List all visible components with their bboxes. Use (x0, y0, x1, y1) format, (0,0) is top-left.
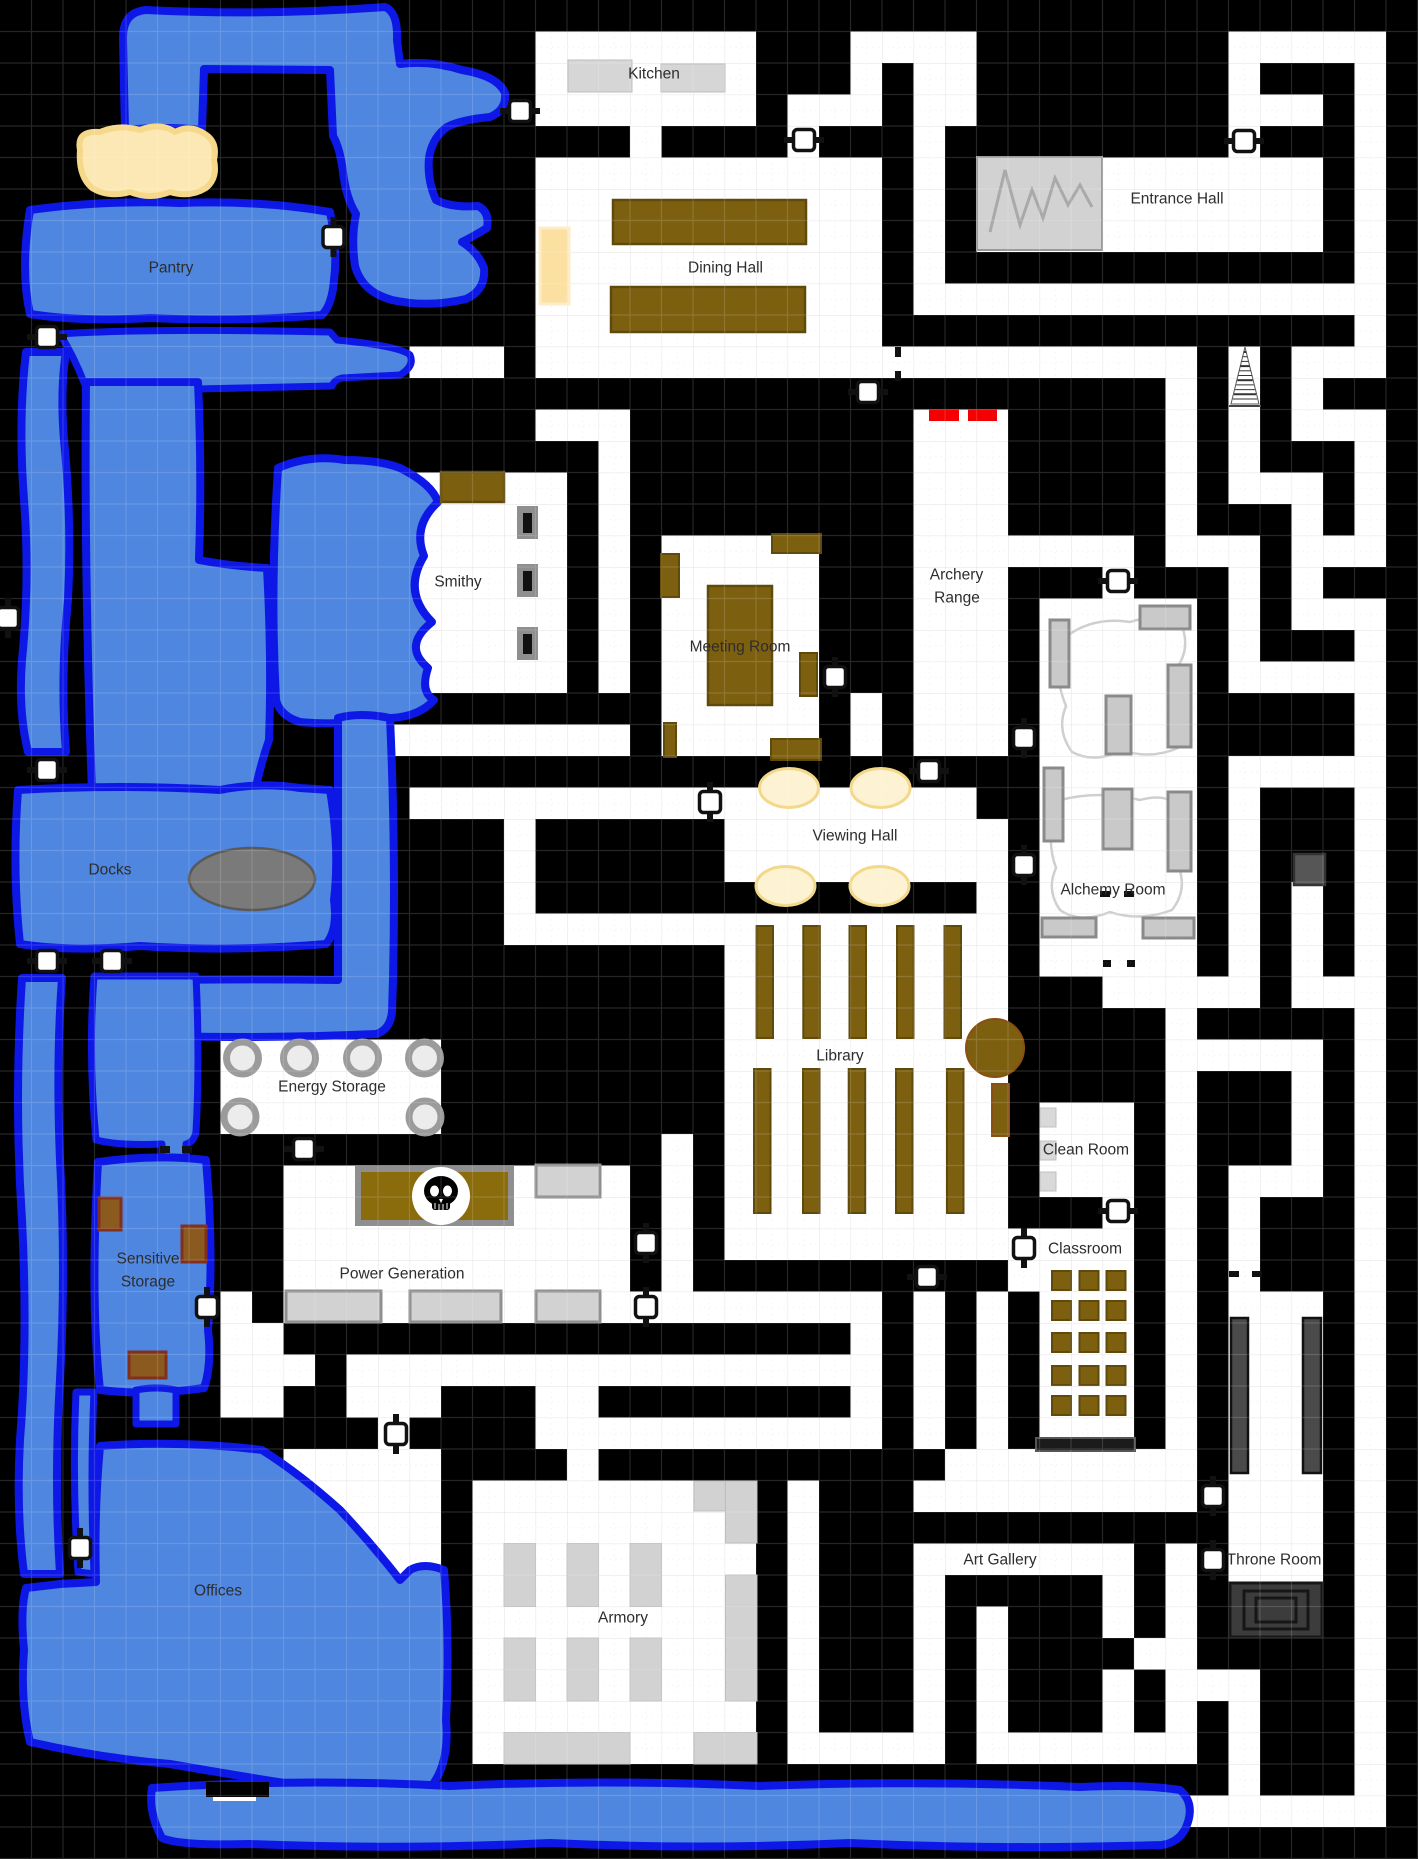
svg-text:Classroom: Classroom (1048, 1241, 1122, 1258)
svg-text:Meeting Room: Meeting Room (690, 639, 791, 656)
svg-text:Pantry: Pantry (149, 260, 194, 277)
svg-text:Kitchen: Kitchen (628, 66, 680, 83)
svg-text:Viewing Hall: Viewing Hall (812, 828, 897, 845)
svg-text:Energy Storage: Energy Storage (278, 1079, 386, 1096)
svg-text:Alchemy Room: Alchemy Room (1060, 882, 1165, 899)
svg-text:Sensitive: Sensitive (117, 1251, 180, 1268)
svg-text:Power Generation: Power Generation (340, 1266, 465, 1283)
svg-text:Entrance Hall: Entrance Hall (1130, 191, 1223, 208)
svg-text:Throne Room: Throne Room (1227, 1552, 1322, 1569)
svg-text:Library: Library (816, 1048, 864, 1065)
svg-text:Clean Room: Clean Room (1043, 1142, 1129, 1159)
svg-text:Armory: Armory (598, 1610, 648, 1627)
svg-text:Range: Range (934, 590, 980, 607)
svg-text:Smithy: Smithy (434, 574, 482, 591)
svg-text:Archery: Archery (930, 567, 984, 584)
svg-text:Offices: Offices (194, 1583, 242, 1600)
svg-text:Docks: Docks (88, 862, 131, 879)
svg-text:Art Gallery: Art Gallery (963, 1552, 1036, 1569)
svg-text:Dining Hall: Dining Hall (688, 260, 763, 277)
svg-text:Storage: Storage (121, 1274, 175, 1291)
